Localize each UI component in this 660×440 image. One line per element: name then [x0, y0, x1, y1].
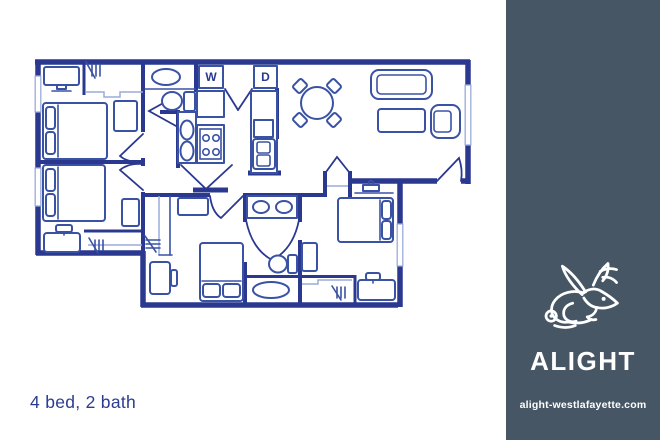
hanger-icon	[145, 236, 160, 252]
dresser	[302, 243, 317, 271]
counter	[197, 91, 224, 117]
desk-chair	[171, 270, 177, 286]
pillow	[46, 132, 55, 154]
toilet	[184, 92, 195, 111]
kitchen-sink	[181, 142, 194, 161]
desk-lamp	[44, 233, 80, 252]
toilet	[288, 255, 297, 273]
pillow	[46, 169, 55, 191]
dryer-label: D	[261, 70, 270, 84]
pillow	[223, 284, 240, 297]
pillow	[46, 107, 55, 129]
door-swing	[326, 157, 349, 172]
door-swing	[246, 220, 272, 260]
bathtub	[253, 282, 289, 298]
hanger-icon	[332, 286, 345, 300]
sink	[276, 201, 292, 213]
pillow	[382, 201, 391, 219]
desk-monitor	[44, 67, 79, 85]
jackalope-icon	[540, 254, 626, 342]
door-swing	[181, 165, 232, 189]
desk	[150, 262, 170, 294]
window	[35, 76, 41, 112]
dresser	[122, 199, 139, 226]
armchair	[431, 105, 460, 138]
page: W D	[0, 0, 660, 440]
living-room	[371, 70, 460, 138]
dining-area	[292, 78, 342, 128]
window	[397, 224, 403, 266]
bedroom-top-left	[43, 62, 143, 159]
dresser	[178, 198, 208, 215]
kitchen: W D	[178, 66, 277, 173]
window	[35, 168, 41, 206]
brand-sidebar: ALIGHT alight-westlafayette.com	[506, 0, 660, 440]
bedroom-bottom-left	[43, 165, 142, 253]
brand-name: ALIGHT	[530, 346, 636, 377]
bathroom-bottom	[247, 196, 297, 298]
door-swing	[210, 196, 243, 218]
bedroom-bottom-right	[302, 181, 395, 300]
dresser	[114, 101, 137, 131]
door-swing	[120, 164, 143, 190]
stove	[197, 125, 224, 163]
brand-website: alight-westlafayette.com	[520, 399, 647, 411]
kitchen-sink	[181, 121, 194, 140]
dining-table	[301, 87, 333, 119]
coffee-table	[378, 109, 425, 132]
sink	[152, 69, 180, 85]
washer-label: W	[205, 70, 217, 84]
entry-door	[437, 158, 462, 181]
window	[465, 85, 471, 145]
plan-caption: 4 bed, 2 bath	[30, 392, 136, 413]
door-swing	[120, 134, 143, 162]
sink	[253, 201, 269, 213]
desk-lamp	[358, 280, 395, 300]
pillow	[203, 284, 220, 297]
bathroom-top	[145, 69, 195, 111]
pillow	[46, 194, 55, 216]
pillow	[382, 221, 391, 239]
